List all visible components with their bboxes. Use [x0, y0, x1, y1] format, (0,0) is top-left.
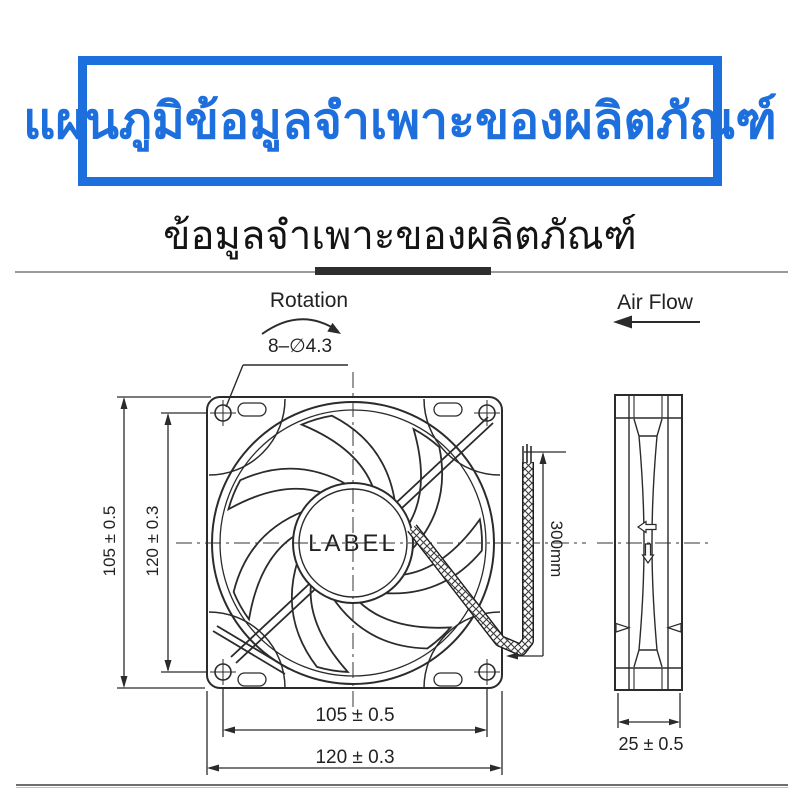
airflow-annotation: Air Flow: [613, 291, 700, 329]
fan-side-view: 25 ± 0.5: [597, 395, 711, 754]
dim-width-holes: 105 ± 0.5: [315, 705, 394, 726]
rotation-annotation: Rotation 8–∅4.3: [226, 289, 348, 407]
dim-height-inner: 120 ± 0.3: [143, 506, 162, 577]
rotation-arrowhead-icon: [327, 323, 341, 334]
wire-strands: [523, 444, 531, 463]
dim-depth: 25 ± 0.5: [619, 734, 684, 754]
rotation-arrow: [262, 319, 338, 334]
rotation-label: Rotation: [270, 289, 348, 312]
bottom-divider: [16, 784, 788, 786]
hub-label: LABEL: [308, 530, 398, 557]
fan-technical-drawing: LABEL: [0, 0, 800, 800]
bottom-divider-highlight: [16, 787, 788, 788]
product-spec-sheet: แผนภูมิข้อมูลจำเพาะของผลิตภัณฑ์ ข้อมูลจำ…: [0, 0, 800, 800]
dim-wire-length: 300mm: [547, 521, 566, 578]
airflow-label: Air Flow: [617, 291, 694, 314]
dim-width-frame: 120 ± 0.3: [315, 747, 394, 768]
dim-height-outer: 105 ± 0.5: [100, 506, 119, 577]
airflow-arrowhead-icon: [613, 316, 632, 329]
holes-label: 8–∅4.3: [268, 336, 332, 357]
